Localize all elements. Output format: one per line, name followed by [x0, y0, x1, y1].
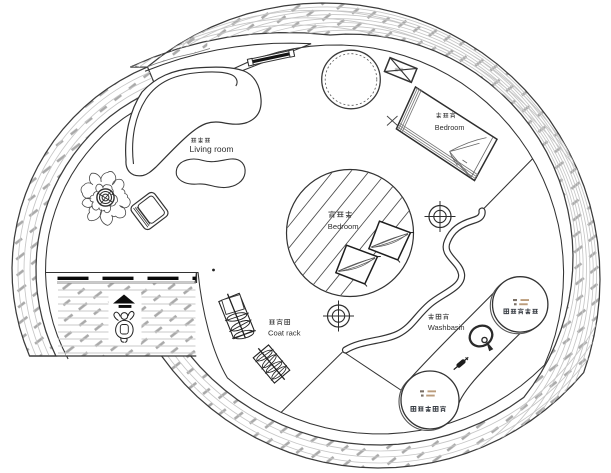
svg-text:Living room: Living room	[190, 144, 234, 154]
svg-text:Bedroom: Bedroom	[328, 222, 359, 231]
svg-text:Coat rack: Coat rack	[268, 329, 301, 338]
svg-text:Washbasin: Washbasin	[428, 323, 465, 332]
svg-text:Bedroom: Bedroom	[435, 123, 465, 132]
